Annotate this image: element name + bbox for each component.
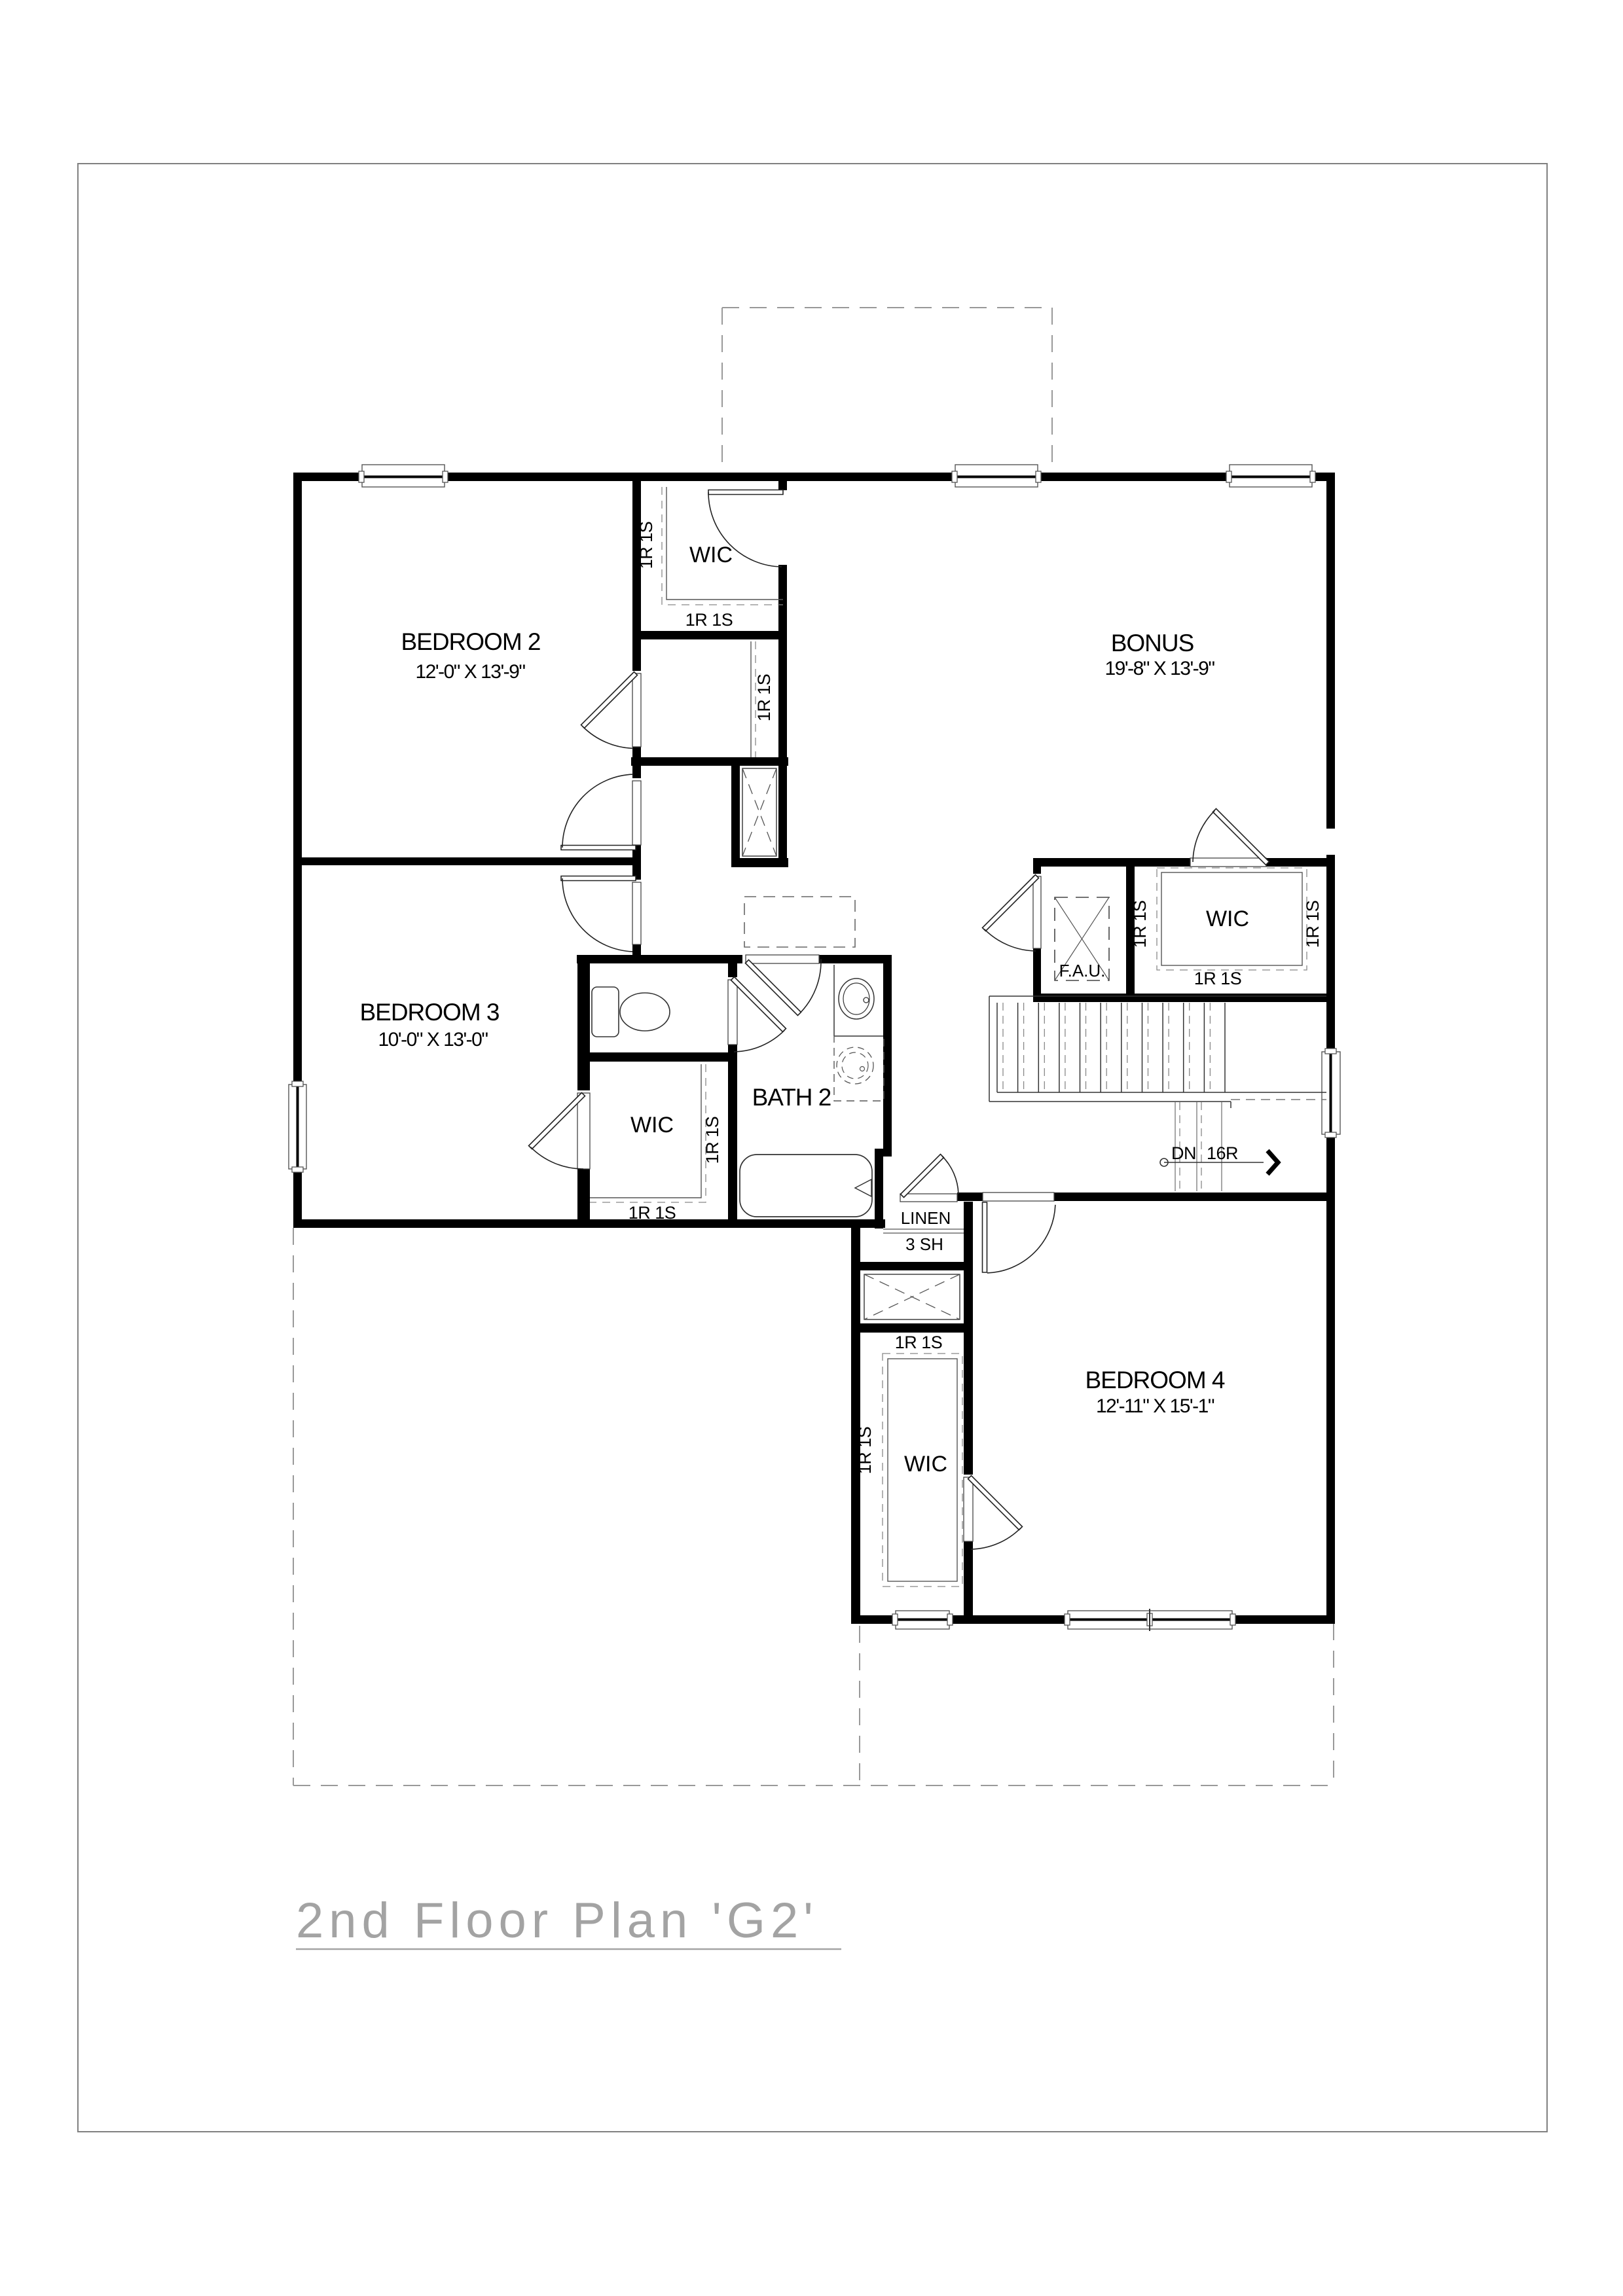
svg-text:BONUS: BONUS bbox=[1111, 630, 1194, 656]
svg-text:1R 1S: 1R 1S bbox=[1194, 969, 1242, 988]
svg-text:BEDROOM 3: BEDROOM 3 bbox=[359, 999, 499, 1026]
svg-text:BEDROOM 2: BEDROOM 2 bbox=[401, 628, 540, 655]
svg-text:3 SH: 3 SH bbox=[905, 1234, 943, 1254]
svg-text:1R 1S: 1R 1S bbox=[1303, 901, 1322, 948]
svg-text:F.A.U.: F.A.U. bbox=[1059, 961, 1106, 980]
svg-text:WIC: WIC bbox=[630, 1113, 674, 1138]
svg-text:LINEN: LINEN bbox=[901, 1208, 951, 1228]
svg-text:12'-11" X 15'-1": 12'-11" X 15'-1" bbox=[1096, 1395, 1214, 1417]
svg-text:10'-0" X 13'-0": 10'-0" X 13'-0" bbox=[378, 1029, 488, 1050]
svg-text:WIC: WIC bbox=[689, 543, 733, 567]
svg-text:1R 1S: 1R 1S bbox=[629, 1203, 676, 1223]
svg-text:2nd Floor Plan 'G2': 2nd Floor Plan 'G2' bbox=[296, 1893, 818, 1948]
svg-text:1R 1S: 1R 1S bbox=[855, 1427, 875, 1475]
svg-text:1R 1S: 1R 1S bbox=[1130, 901, 1150, 948]
svg-text:1R 1S: 1R 1S bbox=[895, 1333, 943, 1352]
svg-text:BATH 2: BATH 2 bbox=[752, 1084, 831, 1111]
svg-text:1R 1S: 1R 1S bbox=[702, 1117, 722, 1164]
svg-text:1R 1S: 1R 1S bbox=[636, 522, 656, 569]
svg-text:DN: DN bbox=[1171, 1143, 1196, 1163]
svg-text:1R 1S: 1R 1S bbox=[685, 610, 733, 630]
svg-text:1R 1S: 1R 1S bbox=[754, 674, 774, 722]
svg-text:WIC: WIC bbox=[904, 1452, 947, 1477]
svg-text:12'-0" X 13'-9": 12'-0" X 13'-9" bbox=[415, 661, 525, 683]
svg-text:16R: 16R bbox=[1207, 1143, 1238, 1163]
svg-text:19'-8" X 13'-9": 19'-8" X 13'-9" bbox=[1104, 658, 1214, 679]
svg-text:WIC: WIC bbox=[1206, 906, 1249, 931]
svg-text:BEDROOM 4: BEDROOM 4 bbox=[1085, 1367, 1224, 1393]
